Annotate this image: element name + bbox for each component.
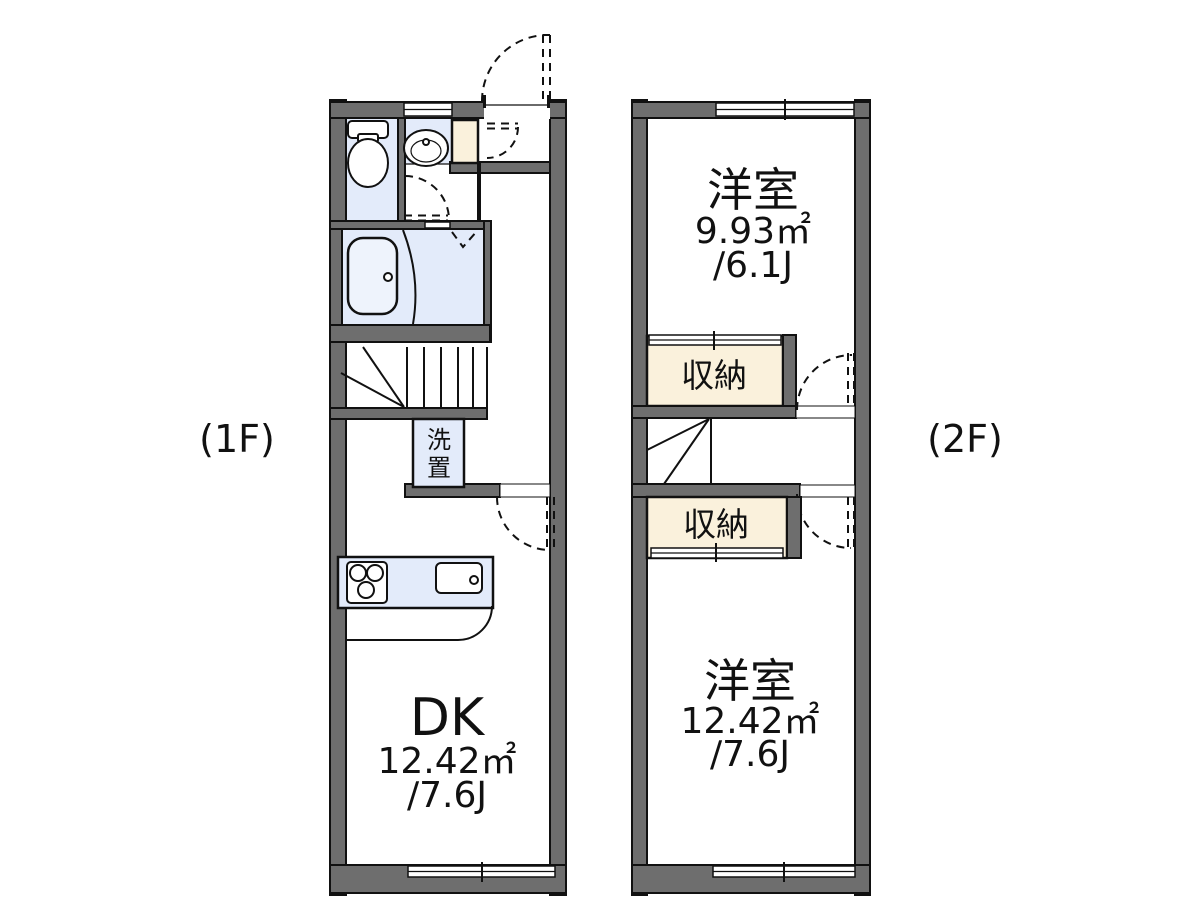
closet-upper-bottom-wall [632,406,796,418]
floor1-plan: 洗 置 [330,35,566,895]
toilet-partition-wall [398,118,405,229]
bathtub-drain [384,273,392,281]
counter-edge-line [346,606,492,640]
staircase-2f-icon [647,418,711,484]
dk-room-label: DK [410,688,486,748]
washroom-hall-partition [477,163,481,221]
bedroom-lower-door-swing-icon [797,494,854,551]
dk-door-swing-icon [497,497,554,551]
washroom-door-swing-icon [404,176,449,221]
laundry-label-top: 洗 [427,426,451,454]
entrance-closet-door-swing-icon [487,124,518,159]
laundry-label-bottom: 置 [427,454,451,482]
bedroom-upper-doorway [796,406,855,418]
bath-entry-threshold [425,222,450,228]
floor2-plan: 収納 収納 [632,99,870,895]
kitchen-counter [338,557,493,640]
closet-lower-right-wall [787,497,801,558]
floor-plan-svg: 洗 置 [0,0,1200,912]
entrance-opening [483,95,550,119]
bath-right-wall [484,221,491,342]
f1-wall-right [550,100,566,895]
floor2-label: (2F) [927,417,1003,461]
bath-top-wall [330,221,490,229]
bathroom [342,222,484,325]
closet-upper: 収納 [647,331,783,406]
dk-doorway [500,484,550,497]
bedroom-lower-label: 洋室 [704,654,796,708]
shoe-cabinet [452,120,478,163]
closet-upper-label: 収納 [681,356,747,395]
bedroom-upper-label: 洋室 [707,163,799,217]
bedroom-upper-area-tatami: /6.1J [713,245,793,286]
washbasin-icon [404,130,448,166]
sink-icon [436,563,482,593]
stove-icon [347,562,387,603]
stair-bottom-wall [330,408,487,419]
washroom-window [404,103,452,116]
laundry-unit: 洗 置 [413,419,464,487]
closet-lower-label: 収納 [683,505,749,544]
f2-wall-right [855,100,870,895]
toilet-icon [348,121,388,187]
bedroom-lower-area-tatami: /7.6J [710,734,790,775]
bath-bottom-wall [330,325,490,342]
floor1-label: (1F) [199,417,275,461]
dk-area-tatami: /7.6J [407,775,487,816]
floor-plan-canvas: 洗 置 [0,0,1200,912]
f1-wall-left [330,100,346,895]
bedroom-upper-door-swing-icon [797,353,854,410]
entrance-door-swing-icon [482,35,550,101]
closet-lower: 収納 [647,497,787,562]
f2-mid-wall [632,484,800,497]
bedroom-lower-doorway [800,485,855,497]
